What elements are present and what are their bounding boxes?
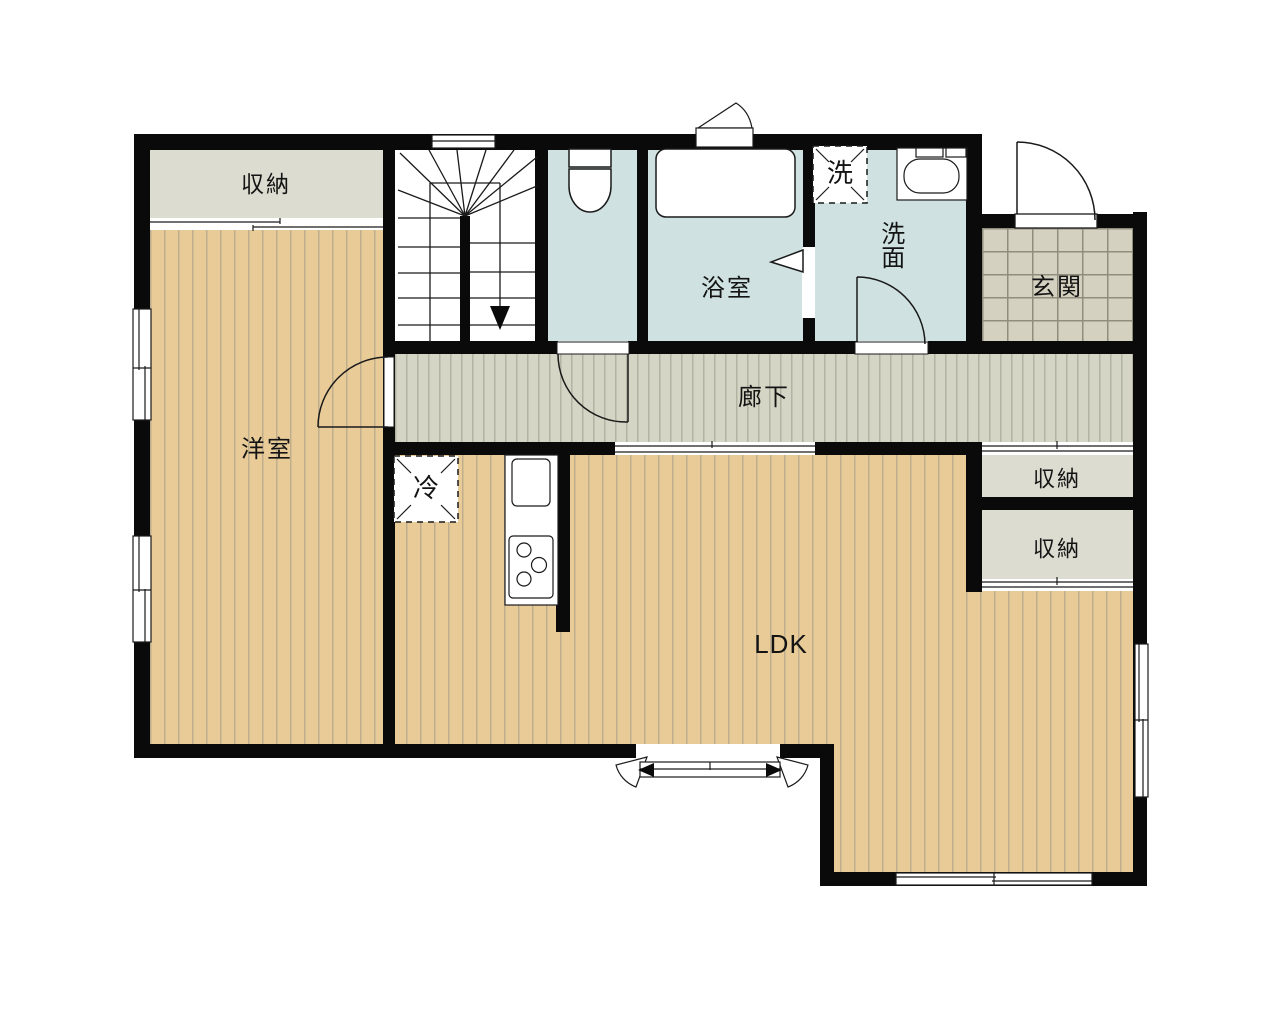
entrance-door: [1015, 142, 1097, 228]
window-left-lower: [133, 536, 151, 642]
bathtub-icon: [656, 149, 795, 217]
fixtures-overlay: [0, 0, 1280, 1024]
washroom-door: [855, 277, 928, 354]
stairs-window: [432, 135, 495, 148]
storage-right-upper-door: [982, 441, 1133, 455]
refrigerator-label: 冷: [413, 474, 439, 504]
toilet-door: [557, 342, 629, 422]
hallway-ldk-opening: [615, 441, 815, 454]
washroom-label: 洗面: [876, 221, 904, 269]
hallway-label: 廊下: [738, 384, 790, 412]
toilet-icon: [569, 149, 611, 212]
bathroom-label: 浴室: [701, 275, 753, 303]
stairs-down-arrow: [490, 306, 510, 330]
window-bottom-right: [896, 873, 1092, 885]
storage-right-lower-door: [982, 577, 1133, 591]
entrance-label: 玄関: [1031, 274, 1083, 302]
ldk-terrace-window: [616, 757, 808, 787]
bathroom-folding-door: [771, 248, 815, 318]
washing-machine-label: 洗: [827, 159, 853, 189]
window-right: [1135, 644, 1148, 797]
kitchen-counter-icon: [505, 455, 558, 605]
floor-plan: 収納 洋室 浴室 洗面 洗 玄関 廊下 冷 収納 収納 LDK: [0, 0, 1280, 1024]
western-room-door: [318, 357, 394, 427]
storage-right-upper-label: 収納: [1033, 466, 1081, 491]
ldk-label: LDK: [754, 630, 808, 660]
storage-top-left-label: 収納: [241, 171, 291, 197]
storage-right-lower-label: 収納: [1033, 536, 1081, 561]
western-room-label: 洋室: [241, 436, 293, 464]
bathroom-window: [696, 103, 753, 147]
closet-sliding-door: [150, 218, 383, 231]
kitchen-sink-icon: [512, 459, 550, 506]
window-left-upper: [133, 309, 151, 420]
sink-icon: [897, 148, 967, 200]
staircase: [398, 150, 537, 343]
